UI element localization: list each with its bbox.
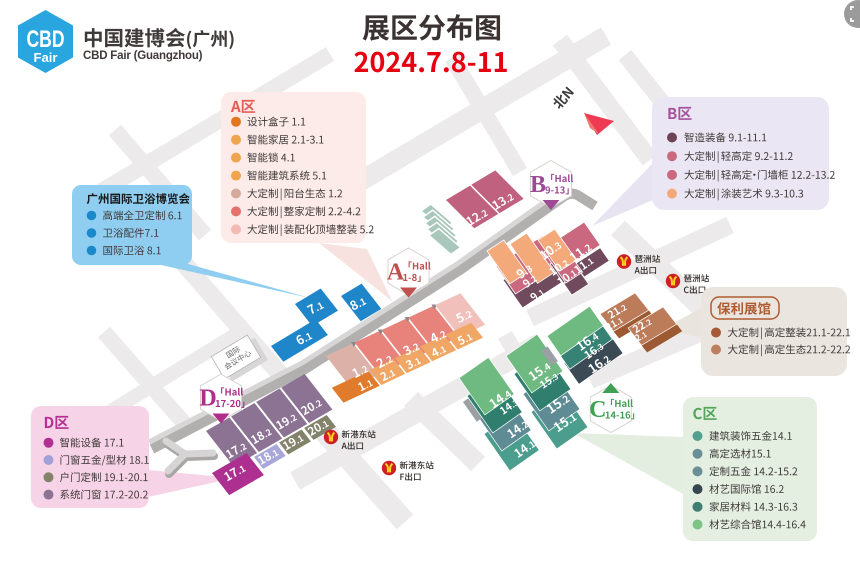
svg-text:B: B [530, 172, 546, 198]
svg-text:C: C [589, 397, 606, 423]
svg-text:Fair: Fair [34, 50, 58, 65]
svg-text:CBD: CBD [27, 26, 65, 53]
svg-text:CBD Fair (Guangzhou): CBD Fair (Guangzhou) [83, 50, 203, 62]
svg-text:D: D [199, 386, 216, 412]
svg-text:A: A [387, 260, 405, 286]
